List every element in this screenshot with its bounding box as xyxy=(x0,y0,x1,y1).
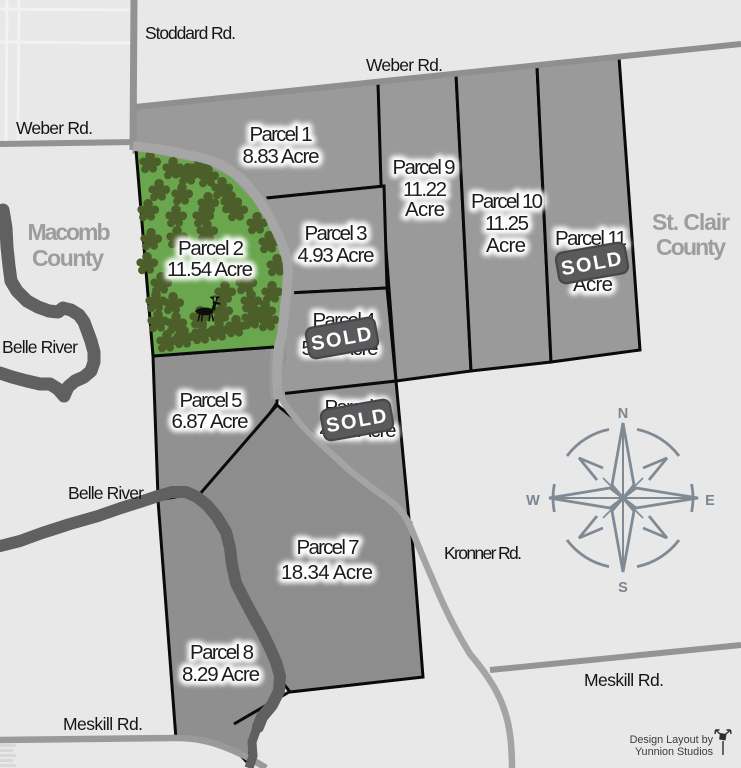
svg-text:Parcel 5: Parcel 5 xyxy=(180,389,243,412)
svg-text:S: S xyxy=(618,580,628,596)
svg-text:Parcel 7: Parcel 7 xyxy=(297,536,360,559)
svg-text:Stoddard Rd.: Stoddard Rd. xyxy=(145,23,236,43)
svg-text:N: N xyxy=(618,406,628,422)
svg-text:8.83 Acre: 8.83 Acre xyxy=(243,145,320,168)
svg-text:8.29 Acre: 8.29 Acre xyxy=(182,663,260,686)
svg-text:Meskill Rd.: Meskill Rd. xyxy=(584,670,664,690)
svg-text:W: W xyxy=(526,493,540,509)
svg-text:Meskill Rd.: Meskill Rd. xyxy=(63,714,143,734)
svg-text:6.87 Acre: 6.87 Acre xyxy=(172,410,249,433)
svg-text:Parcel 1: Parcel 1 xyxy=(250,123,313,146)
svg-text:11.54 Acre: 11.54 Acre xyxy=(167,258,253,281)
svg-text:County: County xyxy=(32,245,104,271)
svg-text:Macomb: Macomb xyxy=(28,219,111,245)
svg-text:Design Layout by: Design Layout by xyxy=(630,734,714,746)
svg-text:County: County xyxy=(656,234,726,260)
svg-text:Yunnion Studios: Yunnion Studios xyxy=(635,746,714,758)
svg-text:Parcel 9: Parcel 9 xyxy=(393,156,456,179)
svg-text:Acre: Acre xyxy=(405,198,445,221)
svg-text:Belle River: Belle River xyxy=(68,483,144,503)
svg-text:Acre: Acre xyxy=(486,234,526,257)
svg-text:Parcel 8: Parcel 8 xyxy=(190,641,254,664)
svg-text:Belle River: Belle River xyxy=(2,337,78,357)
svg-text:Kronner Rd.: Kronner Rd. xyxy=(444,543,522,563)
svg-text:11.25: 11.25 xyxy=(485,212,529,235)
svg-text:St. Clair: St. Clair xyxy=(652,209,730,235)
svg-text:Parcel 3: Parcel 3 xyxy=(305,222,368,245)
svg-text:Weber Rd.: Weber Rd. xyxy=(16,118,93,138)
svg-text:E: E xyxy=(705,493,715,509)
svg-text:Parcel 10: Parcel 10 xyxy=(471,190,543,213)
svg-text:18.34 Acre: 18.34 Acre xyxy=(281,561,373,584)
svg-text:Parcel 2: Parcel 2 xyxy=(178,237,244,260)
svg-text:Weber Rd.: Weber Rd. xyxy=(366,55,443,75)
svg-text:4.93 Acre: 4.93 Acre xyxy=(298,244,375,267)
